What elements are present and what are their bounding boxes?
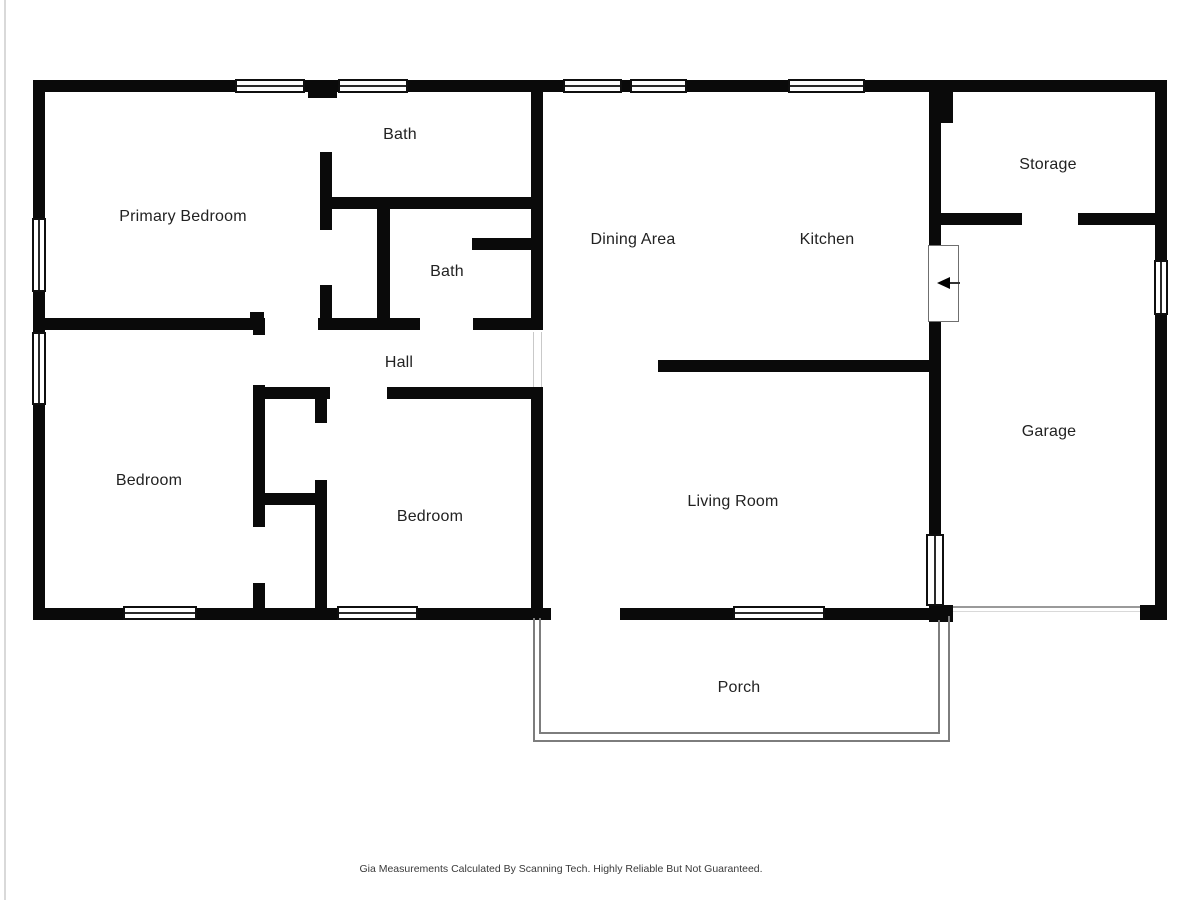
porch-outline-line-3 — [533, 618, 535, 742]
window-7 — [733, 606, 825, 620]
wall-segment-6 — [620, 608, 733, 620]
room-label-bedroom-center: Bedroom — [397, 508, 463, 526]
window-3 — [630, 79, 687, 93]
garage-opening-line-0 — [953, 606, 1140, 608]
porch-outline-line-5 — [948, 616, 950, 742]
wall-segment-23 — [387, 387, 543, 399]
wall-segment-16 — [531, 87, 543, 330]
window-4 — [788, 79, 865, 93]
wall-segment-33 — [929, 322, 941, 534]
wall-segment-12 — [320, 285, 332, 318]
garage-opening-line-1 — [953, 611, 1140, 612]
room-label-hall: Hall — [385, 354, 413, 372]
floorplan-page: { "page": { "background": "#ffffff", "wa… — [0, 0, 1200, 900]
wall-segment-29 — [253, 493, 327, 505]
wall-segment-2 — [1155, 80, 1167, 620]
window-0 — [235, 79, 305, 93]
wall-segment-13 — [328, 197, 535, 209]
page-edge-line — [4, 0, 6, 900]
wall-segment-18 — [33, 318, 262, 330]
wall-segment-9 — [1140, 605, 1167, 620]
wall-segment-11 — [320, 152, 332, 230]
window-pane-line — [340, 85, 406, 87]
wall-segment-3 — [33, 608, 123, 620]
window-pane-line — [237, 85, 303, 87]
wall-segment-34 — [929, 213, 1022, 225]
wall-segment-15 — [472, 238, 531, 250]
window-pane-line — [735, 612, 823, 614]
wall-segment-17 — [531, 387, 543, 608]
wall-segment-27 — [315, 387, 327, 423]
room-label-primary-bedroom: Primary Bedroom — [119, 208, 246, 226]
room-label-bath-lower: Bath — [430, 263, 464, 281]
window-pane-line — [125, 612, 195, 614]
wall-segment-30 — [658, 360, 929, 372]
room-label-living-room: Living Room — [687, 493, 778, 511]
wall-segment-32 — [929, 92, 953, 123]
wall-segment-25 — [253, 385, 265, 527]
window-pane-line — [632, 85, 685, 87]
window-pane-line — [934, 536, 936, 604]
wall-segment-24 — [253, 318, 265, 335]
wall-segment-35 — [1078, 213, 1157, 225]
room-label-dining-area: Dining Area — [591, 231, 676, 249]
wall-segment-7 — [825, 608, 929, 620]
window-11 — [926, 534, 944, 606]
room-label-kitchen: Kitchen — [800, 231, 855, 249]
window-1 — [338, 79, 408, 93]
window-pane-line — [1160, 262, 1162, 313]
window-pane-line — [339, 612, 416, 614]
porch-outline-line-0 — [539, 618, 541, 734]
porch-outline-line-2 — [938, 620, 940, 734]
wall-segment-26 — [253, 583, 265, 618]
porch-outline-line-1 — [539, 732, 940, 734]
room-label-storage: Storage — [1019, 156, 1076, 174]
wall-segment-21 — [473, 318, 543, 330]
hall-opening-line-1 — [541, 332, 542, 387]
wall-segment-5 — [418, 608, 551, 620]
window-6 — [337, 606, 418, 620]
door-arrow-line — [950, 282, 960, 284]
window-10 — [1154, 260, 1168, 315]
window-2 — [563, 79, 622, 93]
room-label-bedroom-left: Bedroom — [116, 472, 182, 490]
floorplan: Primary BedroomBathBathHallDining AreaKi… — [0, 0, 1200, 900]
wall-segment-14 — [377, 209, 390, 318]
wall-segment-20 — [318, 318, 420, 330]
window-pane-line — [565, 85, 620, 87]
window-8 — [32, 218, 46, 292]
wall-segment-10 — [308, 92, 337, 98]
room-label-garage: Garage — [1022, 423, 1077, 441]
room-label-bath-top: Bath — [383, 126, 417, 144]
window-pane-line — [790, 85, 863, 87]
window-5 — [123, 606, 197, 620]
footer-disclaimer: Gia Measurements Calculated By Scanning … — [359, 863, 762, 875]
window-pane-line — [38, 220, 40, 290]
porch-outline-line-4 — [533, 740, 950, 742]
window-pane-line — [38, 334, 40, 403]
hall-opening-line-0 — [533, 332, 534, 387]
window-9 — [32, 332, 46, 405]
room-label-porch: Porch — [718, 679, 761, 697]
door-direction-arrow-icon — [937, 277, 950, 289]
